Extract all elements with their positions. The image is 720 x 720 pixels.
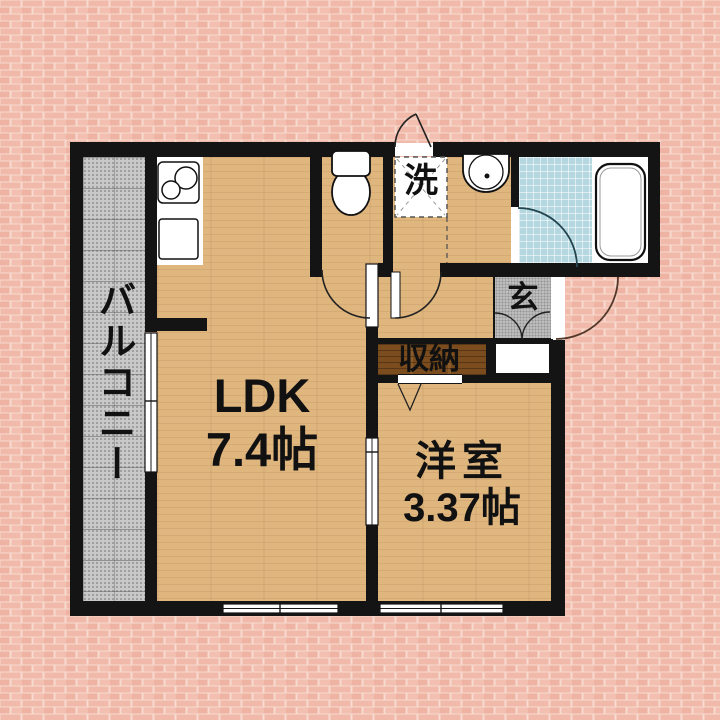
bathroom-door-gap — [511, 207, 519, 263]
balcony-window — [145, 333, 157, 472]
bathtub-icon — [596, 164, 645, 260]
western-room-label: 洋室 — [378, 441, 546, 482]
top-door-gap — [395, 143, 433, 156]
top-service-door — [395, 114, 431, 147]
storage-door-marker — [398, 384, 421, 410]
front-door — [556, 277, 618, 339]
entrance-label: 玄 — [496, 282, 550, 313]
western-room-window — [380, 604, 503, 613]
laundry-label: 洗 — [396, 164, 446, 198]
bathroom-door — [518, 208, 577, 267]
floorplan-canvas: バルコニー LDK 7.4帖 洋室 3.37帖 収納 玄 洗 — [0, 0, 720, 720]
ldk-window — [223, 604, 338, 613]
ldk-area-label: 7.4帖 — [157, 426, 367, 473]
ldk-label: LDK — [157, 372, 367, 419]
shoe-cabinet-doors — [495, 312, 550, 340]
toilet-door — [322, 264, 378, 327]
balcony-label: バルコニー — [88, 252, 132, 512]
western-room-area-label: 3.37帖 — [378, 488, 546, 528]
kitchen-sink-icon — [159, 219, 198, 259]
washbasin-icon — [463, 154, 509, 192]
toilet-icon — [332, 151, 370, 215]
ldk-western-sliding-door — [366, 438, 378, 525]
front-door-gap — [551, 277, 565, 340]
stove-icon — [158, 162, 199, 203]
storage-label: 収納 — [372, 343, 486, 374]
laundry-door — [391, 272, 441, 318]
